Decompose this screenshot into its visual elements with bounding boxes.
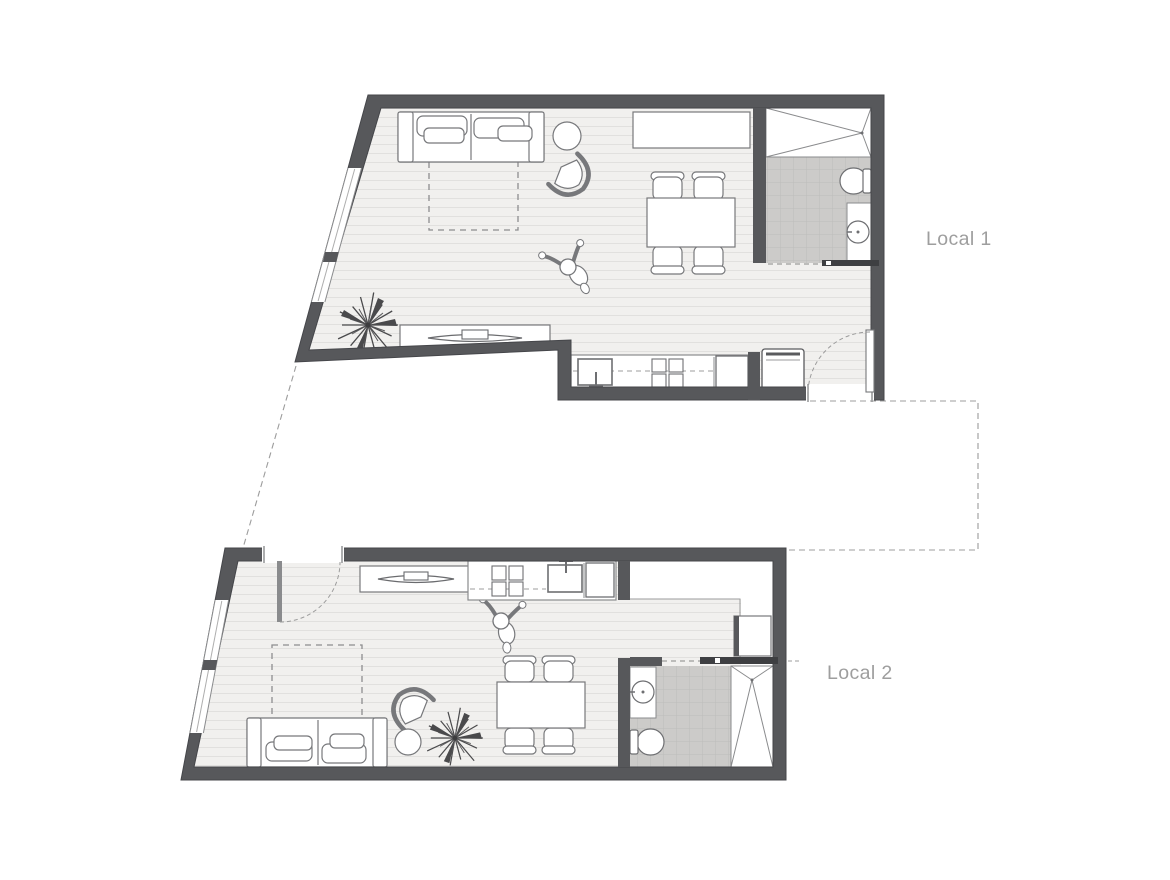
local-1-plan — [290, 90, 890, 410]
sofa-icon — [398, 112, 544, 162]
floor-plan-canvas: Local 1 Local 2 — [0, 0, 1170, 880]
washbasin-icon — [847, 203, 871, 262]
local-1-label: Local 1 — [926, 228, 992, 250]
bathroom — [766, 108, 871, 263]
shower-icon — [731, 666, 773, 767]
dining-table-icon — [497, 682, 585, 728]
fridge-icon — [734, 616, 771, 656]
side-table-icon — [553, 122, 581, 150]
tv-console-icon — [360, 566, 473, 592]
corridor-wall-stub — [618, 561, 630, 600]
bathroom-wall — [618, 658, 630, 767]
washbasin-icon — [630, 667, 656, 718]
sofa-icon — [247, 718, 387, 767]
side-table-icon — [395, 729, 421, 755]
kitchen-counter-icon — [468, 559, 616, 600]
local-2-label: Local 2 — [827, 662, 893, 684]
appliance-icon — [586, 563, 614, 597]
dining-chair-icon — [692, 266, 725, 274]
kitchen-counter-icon — [571, 355, 748, 389]
fridge-icon — [762, 349, 804, 391]
dining-chair-icon — [503, 746, 536, 754]
toilet-icon — [630, 729, 664, 755]
floor-plan-drawing: Local 1 Local 2 — [0, 0, 1170, 880]
dining-chair-icon — [651, 266, 684, 274]
site-boundary-line — [243, 366, 296, 548]
bathroom — [630, 666, 773, 767]
terrace-boundary-line — [788, 401, 978, 550]
sideboard-icon — [633, 112, 750, 148]
door-leaf — [277, 561, 282, 622]
toilet-icon — [840, 168, 871, 194]
dining-table-icon — [647, 198, 735, 247]
kitchen-wall-stub — [748, 352, 760, 400]
dining-chair-icon — [542, 746, 575, 754]
kitchen-sink-icon — [578, 359, 612, 388]
shower-icon — [766, 108, 871, 157]
local-2-plan — [181, 546, 802, 780]
bathroom-wall — [753, 108, 766, 263]
appliance-icon — [716, 356, 748, 388]
door-leaf — [866, 330, 874, 392]
bathroom-wall-stub — [630, 657, 662, 666]
